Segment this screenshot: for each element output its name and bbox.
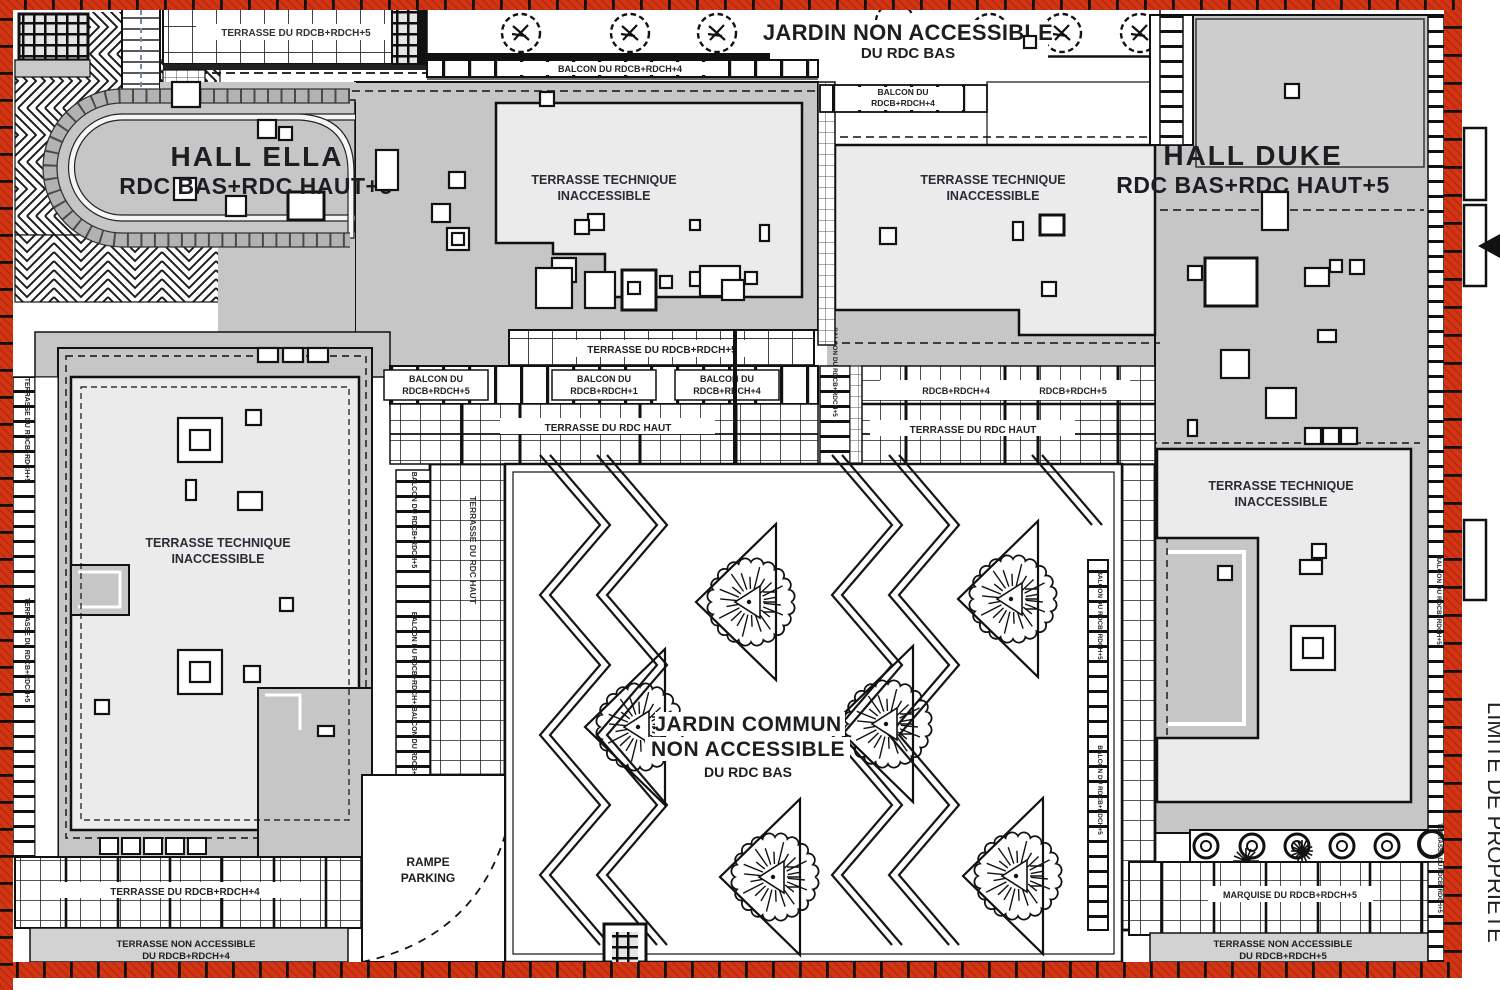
- svg-text:RDC BAS+RDC HAUT+5: RDC BAS+RDC HAUT+5: [1116, 172, 1390, 198]
- svg-text:TERRASSE DU RDCB+RDCH+5: TERRASSE DU RDCB+RDCH+5: [23, 378, 30, 483]
- svg-text:TERRASSE NON ACCESSIBLE: TERRASSE NON ACCESSIBLE: [1214, 939, 1353, 950]
- svg-text:BALCON DU RDCB+RDCH+2: BALCON DU RDCB+RDCH+2: [410, 612, 417, 709]
- svg-text:TERRASSE DU RDC HAUT: TERRASSE DU RDC HAUT: [468, 496, 478, 604]
- svg-text:TERRASSE DU RDCB+RDCH+5: TERRASSE DU RDCB+RDCH+5: [1436, 823, 1442, 913]
- svg-text:BALCON DU RDCB+RDCH+5: BALCON DU RDCB+RDCH+5: [1096, 570, 1103, 660]
- svg-text:BALCON DU: BALCON DU: [700, 374, 754, 384]
- svg-text:BALCON DU RDCB+RDCH+5: BALCON DU RDCB+RDCH+5: [1096, 745, 1103, 835]
- svg-text:RDCB+RDCH+4: RDCB+RDCH+4: [871, 98, 935, 108]
- svg-text:DU RDCB+RDCH+5: DU RDCB+RDCH+5: [1239, 951, 1327, 962]
- svg-text:TERRASSE DU RDCB+RDCH+5: TERRASSE DU RDCB+RDCH+5: [23, 598, 30, 703]
- svg-text:RDCB+RDCH+5: RDCB+RDCH+5: [402, 386, 470, 396]
- svg-text:BALCON DU: BALCON DU: [878, 87, 929, 97]
- svg-text:TERRASSE TECHNIQUE: TERRASSE TECHNIQUE: [145, 536, 290, 550]
- svg-text:RDCB+RDCH+5: RDCB+RDCH+5: [1039, 386, 1107, 396]
- svg-text:RDCB+RDCH+4: RDCB+RDCH+4: [693, 386, 761, 396]
- svg-text:BALCON DU: BALCON DU: [577, 374, 631, 384]
- svg-text:INACCESSIBLE: INACCESSIBLE: [1234, 495, 1327, 509]
- svg-text:PARKING: PARKING: [401, 871, 455, 885]
- svg-text:RDCB+RDCH+1: RDCB+RDCH+1: [570, 386, 638, 396]
- svg-text:DU RDC BAS: DU RDC BAS: [861, 45, 955, 62]
- svg-text:TERRASSE DU RDC HAUT: TERRASSE DU RDC HAUT: [545, 423, 672, 434]
- svg-text:TERRASSE DU RDCB+RDCH+5: TERRASSE DU RDCB+RDCH+5: [221, 28, 371, 39]
- svg-text:LIMITE DE PROPRIETE: LIMITE DE PROPRIETE: [1483, 702, 1500, 943]
- svg-text:TERRASSE DU RDC HAUT: TERRASSE DU RDC HAUT: [910, 425, 1037, 436]
- svg-text:BALCON DU RDCB+RDCH+5: BALCON DU RDCB+RDCH+5: [1435, 555, 1442, 645]
- svg-text:DU RDCB+RDCH+4: DU RDCB+RDCH+4: [142, 951, 230, 962]
- svg-text:BALCON DU: BALCON DU: [409, 374, 463, 384]
- svg-text:TERRASSE NON ACCESSIBLE: TERRASSE NON ACCESSIBLE: [117, 939, 256, 950]
- svg-text:INACCESSIBLE: INACCESSIBLE: [946, 189, 1039, 203]
- svg-text:TERRASSE TECHNIQUE: TERRASSE TECHNIQUE: [920, 173, 1065, 187]
- svg-text:DU RDC BAS: DU RDC BAS: [704, 764, 792, 780]
- svg-text:RDC BAS+RDC HAUT+5: RDC BAS+RDC HAUT+5: [119, 173, 393, 199]
- svg-text:BALCON DU RDCB+RDCH+4: BALCON DU RDCB+RDCH+4: [558, 64, 682, 74]
- svg-text:TERRASSE DU RDCB+RDCH+5: TERRASSE DU RDCB+RDCH+5: [587, 345, 737, 356]
- svg-text:INACCESSIBLE: INACCESSIBLE: [557, 189, 650, 203]
- svg-text:TERRASSE DU RDCB+RDCH+4: TERRASSE DU RDCB+RDCH+4: [110, 887, 260, 898]
- svg-text:INACCESSIBLE: INACCESSIBLE: [171, 552, 264, 566]
- svg-text:NON ACCESSIBLE: NON ACCESSIBLE: [651, 738, 845, 761]
- svg-text:HALL ELLA: HALL ELLA: [170, 141, 343, 172]
- svg-text:JARDIN NON ACCESSIBLE: JARDIN NON ACCESSIBLE: [763, 20, 1053, 45]
- svg-text:TERRASSE TECHNIQUE: TERRASSE TECHNIQUE: [1208, 479, 1353, 493]
- svg-text:BALCON DU RDCB+RDCH+5: BALCON DU RDCB+RDCH+5: [410, 472, 417, 569]
- svg-text:TERRASSE TECHNIQUE: TERRASSE TECHNIQUE: [531, 173, 676, 187]
- svg-text:RDCB+RDCH+4: RDCB+RDCH+4: [922, 386, 990, 396]
- svg-text:JARDIN COMMUN: JARDIN COMMUN: [654, 713, 841, 736]
- svg-text:RAMPE: RAMPE: [406, 855, 449, 869]
- svg-text:MARQUISE DU RDCB+RDCH+5: MARQUISE DU RDCB+RDCH+5: [1223, 890, 1357, 900]
